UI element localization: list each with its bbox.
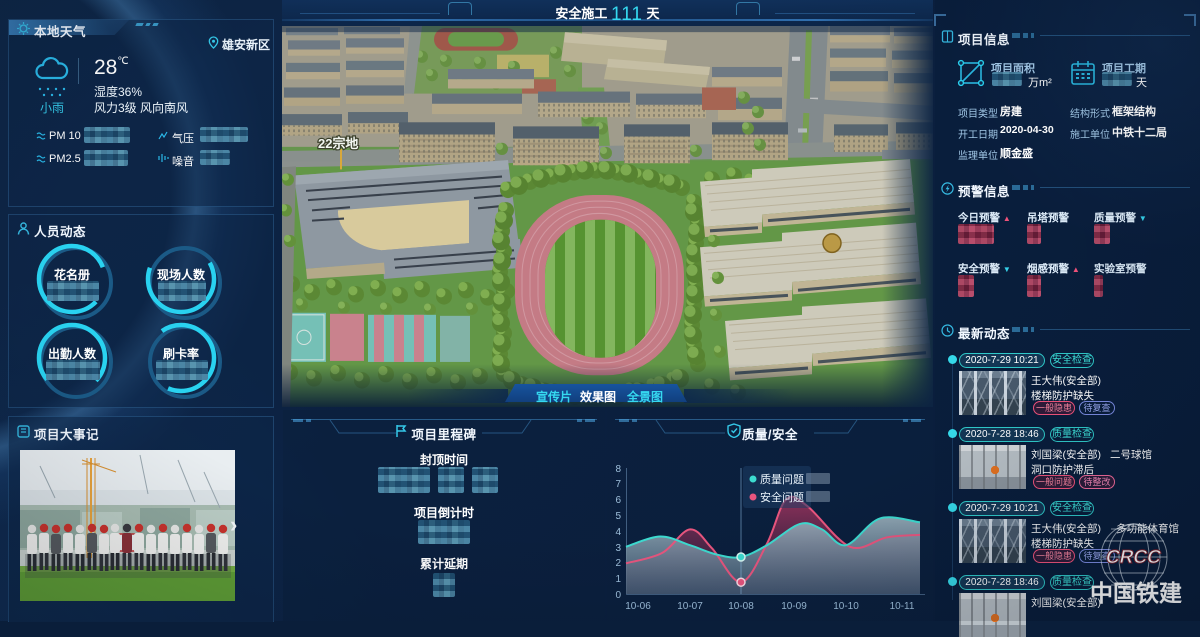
svg-text:10-09: 10-09 <box>781 601 807 612</box>
svg-text:3: 3 <box>615 543 621 554</box>
svg-text:2: 2 <box>615 558 621 569</box>
svg-text:10-06: 10-06 <box>625 601 651 612</box>
svg-text:22宗地: 22宗地 <box>318 135 358 151</box>
svg-text:4: 4 <box>615 527 621 538</box>
svg-text:质量问题: 质量问题 <box>760 473 804 486</box>
svg-text:5: 5 <box>615 511 621 522</box>
svg-text:7: 7 <box>615 479 621 490</box>
svg-text:10-07: 10-07 <box>677 601 703 612</box>
svg-text:8: 8 <box>615 464 621 475</box>
svg-text:安全问题: 安全问题 <box>760 490 804 504</box>
svg-text:10-11: 10-11 <box>890 601 915 612</box>
svg-text:CRCC: CRCC <box>1104 547 1163 568</box>
svg-text:10-10: 10-10 <box>833 601 859 612</box>
svg-text:0: 0 <box>615 590 621 601</box>
svg-text:10-08: 10-08 <box>728 601 754 612</box>
svg-text:中国铁建: 中国铁建 <box>1090 580 1182 606</box>
svg-text:6: 6 <box>615 495 621 506</box>
svg-text:1: 1 <box>615 574 621 585</box>
